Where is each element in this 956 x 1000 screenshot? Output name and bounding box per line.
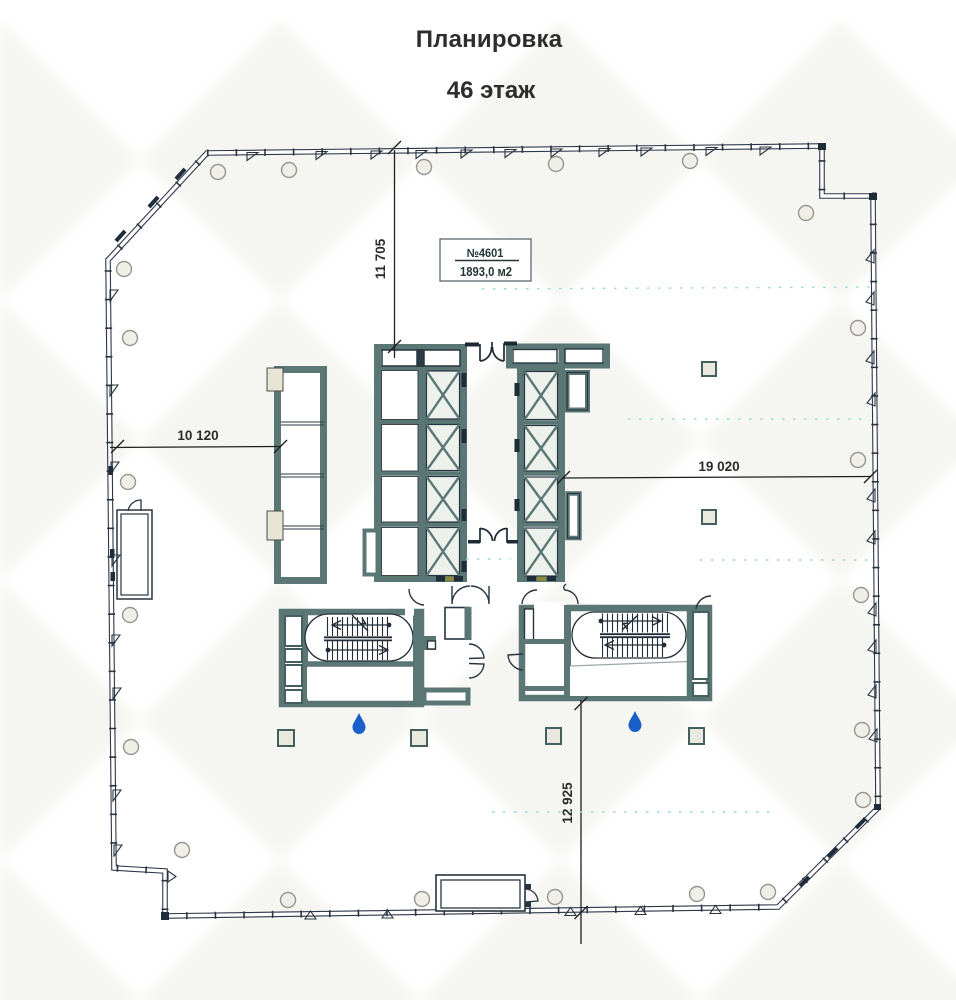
svg-text:Планировка: Планировка — [416, 26, 563, 53]
svg-text:№4601: №4601 — [467, 248, 504, 260]
svg-text:12 925: 12 925 — [560, 782, 575, 824]
svg-text:11 705: 11 705 — [373, 238, 388, 279]
svg-text:46 этаж: 46 этаж — [447, 77, 536, 104]
svg-text:1893,0 м2: 1893,0 м2 — [460, 264, 512, 279]
svg-text:10 120: 10 120 — [177, 428, 218, 443]
svg-text:19 020: 19 020 — [698, 459, 739, 474]
